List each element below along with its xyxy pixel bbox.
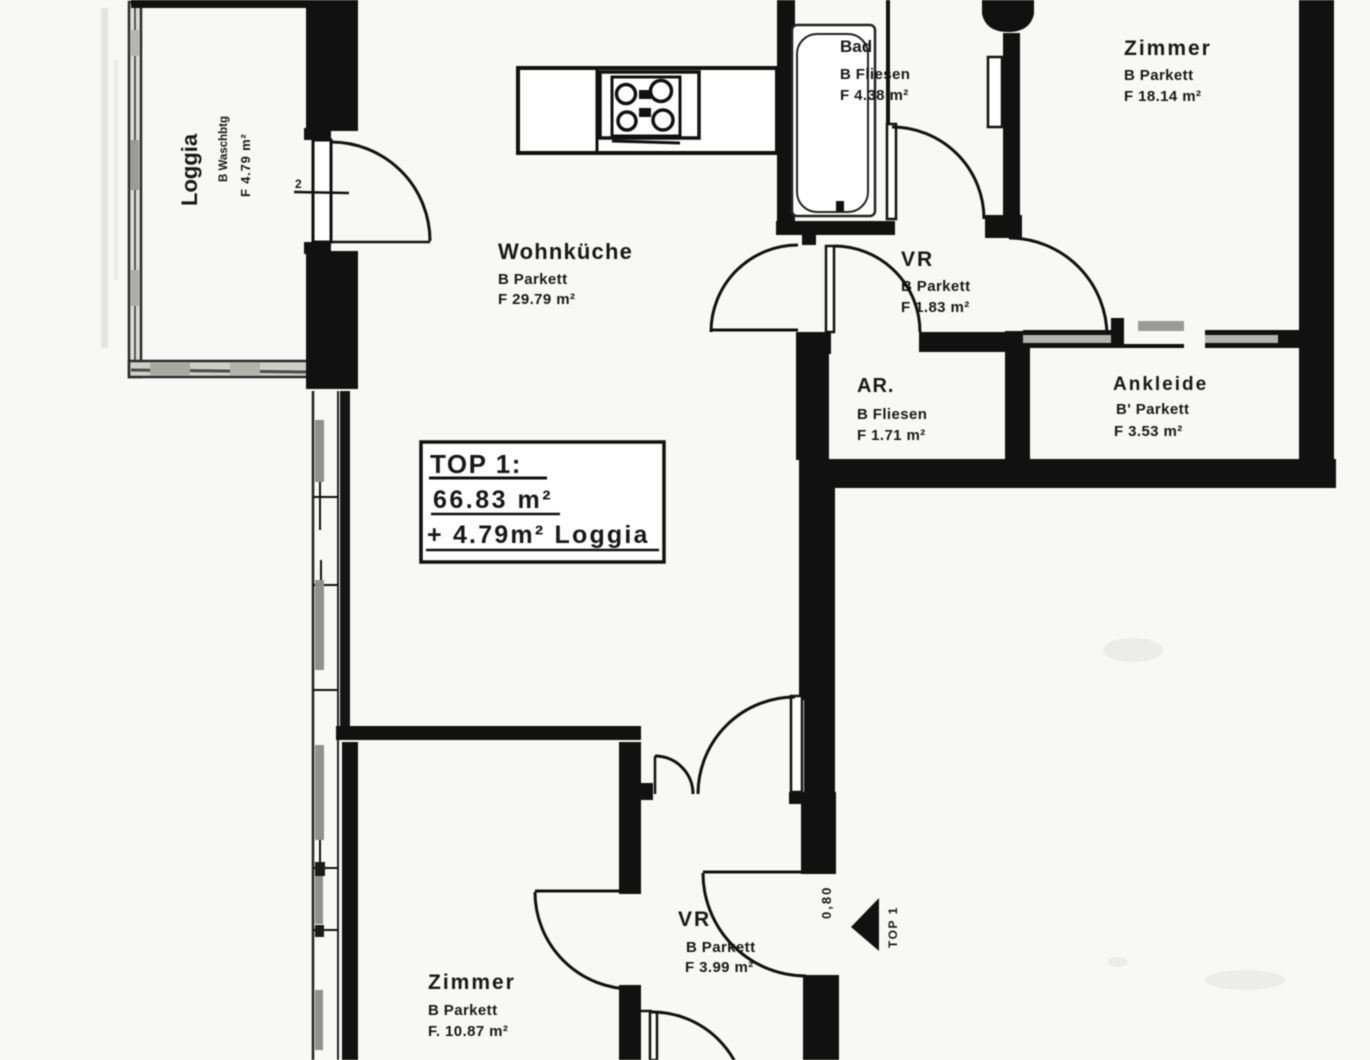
svg-text:F 1.71 m²: F 1.71 m² xyxy=(857,427,926,444)
svg-text:VR: VR xyxy=(901,248,934,271)
svg-text:Zimmer: Zimmer xyxy=(1124,37,1212,60)
svg-text:AR.: AR. xyxy=(857,375,894,397)
svg-text:B Fliesen: B Fliesen xyxy=(840,66,910,83)
svg-text:F 1.83 m²: F 1.83 m² xyxy=(901,299,970,316)
svg-text:+ 4.79m² Loggia: + 4.79m² Loggia xyxy=(427,521,650,549)
svg-text:2: 2 xyxy=(295,177,302,191)
svg-text:F 4.79 m²: F 4.79 m² xyxy=(238,133,253,197)
svg-text:F 3.53 m²: F 3.53 m² xyxy=(1114,423,1183,440)
svg-text:TOP 1:: TOP 1: xyxy=(430,449,522,479)
svg-text:B Parkett: B Parkett xyxy=(498,271,567,288)
svg-text:0,80: 0,80 xyxy=(819,886,834,919)
svg-text:Zimmer: Zimmer xyxy=(428,971,516,994)
svg-text:F 4.38 m²: F 4.38 m² xyxy=(840,87,909,104)
svg-text:B Waschbtg: B Waschbtg xyxy=(218,116,230,182)
svg-text:TOP 1: TOP 1 xyxy=(886,906,900,948)
svg-text:B Parkett: B Parkett xyxy=(686,939,755,956)
svg-text:F. 10.87 m²: F. 10.87 m² xyxy=(428,1023,508,1040)
svg-text:B Parkett: B Parkett xyxy=(1124,67,1193,84)
svg-text:B Fliesen: B Fliesen xyxy=(857,406,927,423)
svg-text:66.83 m²: 66.83 m² xyxy=(433,486,553,514)
svg-text:F 29.79 m²: F 29.79 m² xyxy=(498,291,575,308)
svg-text:B Parkett: B Parkett xyxy=(428,1002,497,1019)
svg-text:Wohnküche: Wohnküche xyxy=(498,239,633,264)
svg-text:VR: VR xyxy=(678,908,711,931)
svg-text:Bad: Bad xyxy=(840,37,872,56)
svg-text:F 18.14 m²: F 18.14 m² xyxy=(1124,88,1201,105)
svg-text:Loggia: Loggia xyxy=(177,133,202,206)
svg-text:Ankleide: Ankleide xyxy=(1113,374,1208,395)
svg-text:B' Parkett: B' Parkett xyxy=(1116,401,1189,418)
svg-text:F 3.99 m²: F 3.99 m² xyxy=(685,959,754,976)
